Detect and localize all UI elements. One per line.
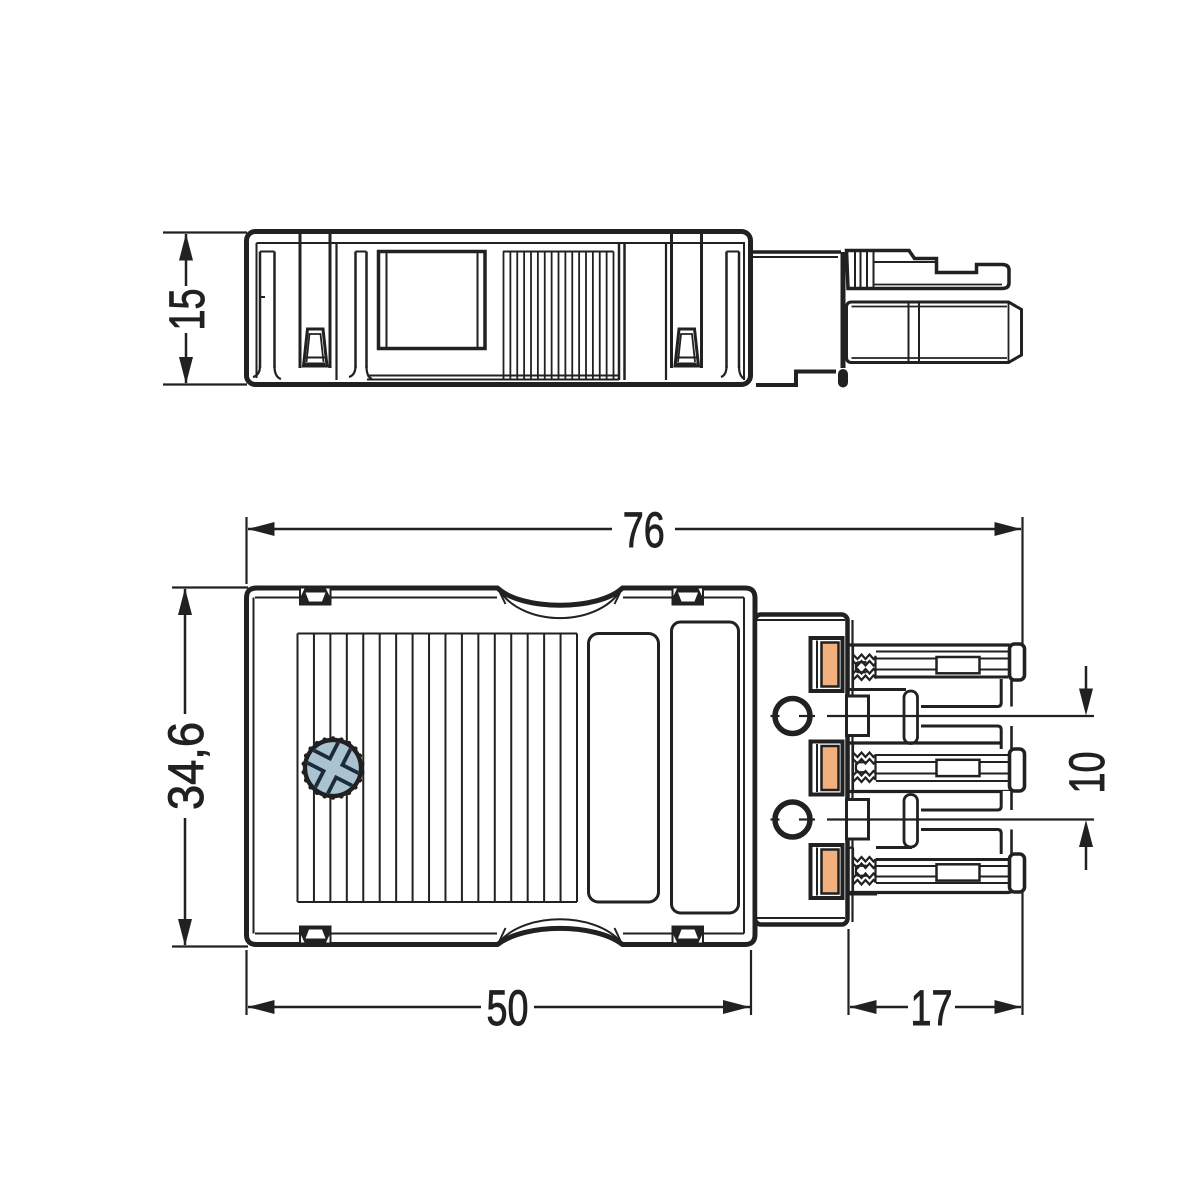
svg-text:10: 10: [1059, 752, 1115, 794]
svg-text:76: 76: [623, 502, 665, 558]
svg-text:15: 15: [159, 289, 215, 331]
svg-text:34,6: 34,6: [158, 722, 214, 810]
svg-text:50: 50: [487, 980, 529, 1036]
svg-text:17: 17: [911, 980, 953, 1036]
